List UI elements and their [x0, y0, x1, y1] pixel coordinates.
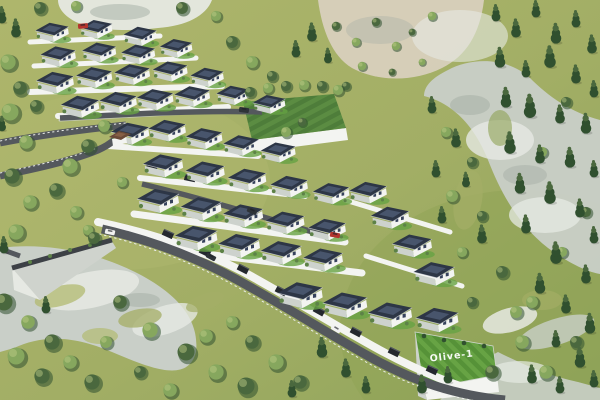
- bush: [482, 344, 487, 349]
- scene-canvas: Olive-1: [0, 0, 600, 400]
- aerial-render: Olive-1: [0, 0, 600, 400]
- bush: [462, 341, 467, 346]
- bush: [422, 334, 427, 339]
- car: [78, 23, 88, 29]
- bush: [442, 338, 447, 343]
